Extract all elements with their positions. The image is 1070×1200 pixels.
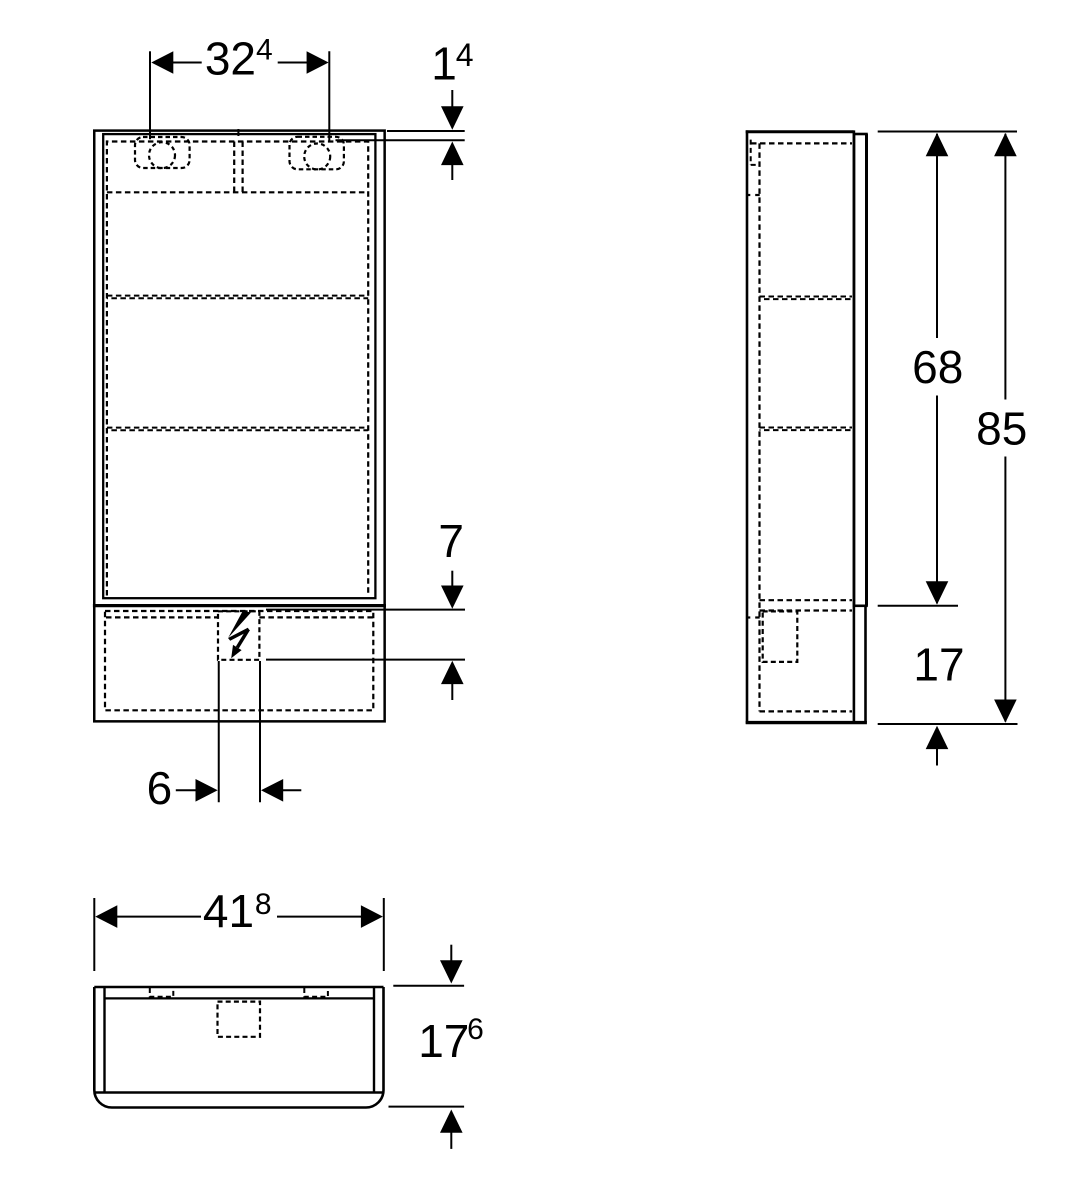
svg-text:17: 17 xyxy=(418,1015,469,1067)
svg-text:6: 6 xyxy=(467,1013,484,1046)
svg-text:68: 68 xyxy=(912,341,963,393)
svg-text:6: 6 xyxy=(147,762,173,814)
svg-text:17: 17 xyxy=(913,639,964,691)
svg-text:41: 41 xyxy=(203,885,254,937)
svg-text:4: 4 xyxy=(456,37,474,73)
svg-text:4: 4 xyxy=(256,33,273,66)
svg-text:1: 1 xyxy=(431,37,457,89)
svg-text:8: 8 xyxy=(255,888,272,921)
svg-text:85: 85 xyxy=(976,402,1027,454)
svg-text:7: 7 xyxy=(438,515,464,567)
svg-text:32: 32 xyxy=(205,33,256,85)
